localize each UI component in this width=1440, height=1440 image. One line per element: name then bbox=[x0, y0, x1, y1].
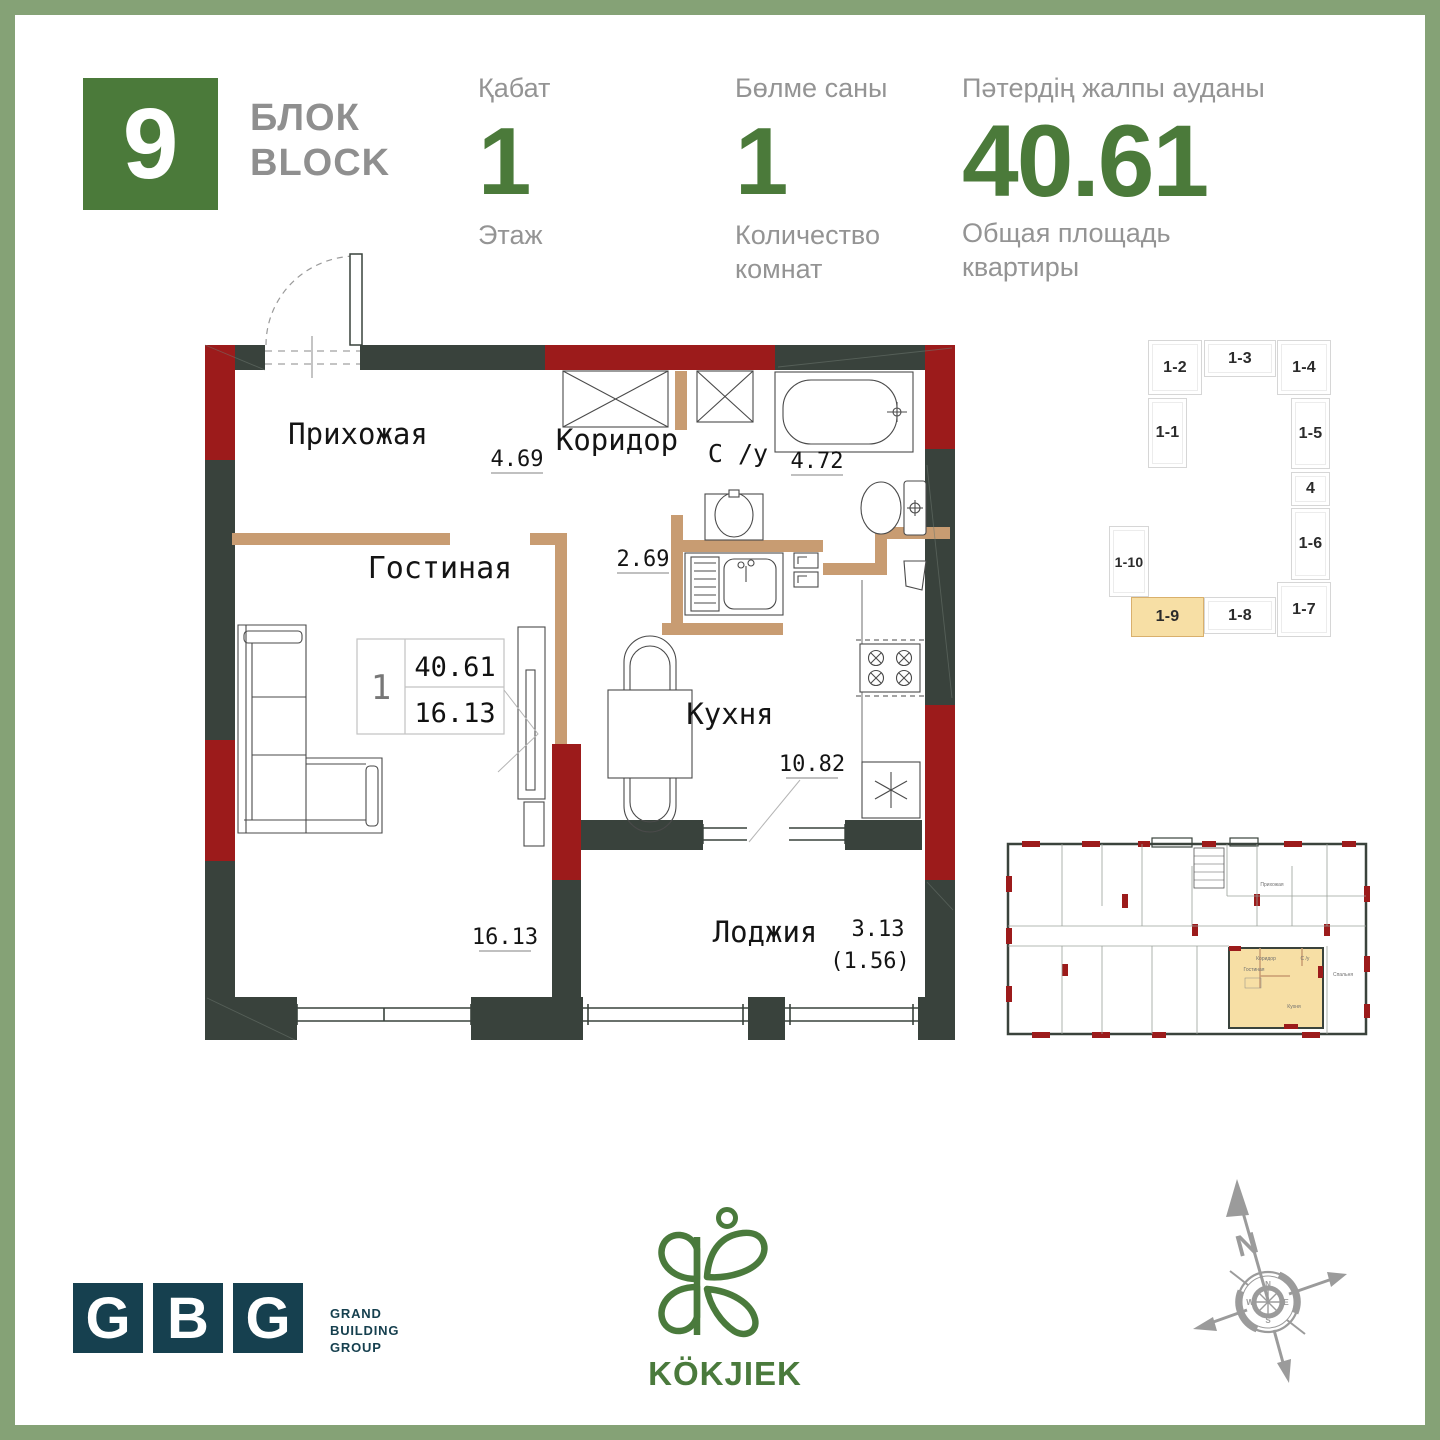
kokjiek-wordmark: KÖKJIEK bbox=[620, 1355, 830, 1393]
water-heater-icon bbox=[862, 762, 920, 818]
floor-label-kz: Қабат bbox=[478, 72, 698, 104]
corridor-label: Коридор bbox=[556, 423, 678, 457]
living-label: Гостиная bbox=[368, 551, 513, 586]
unit-label: 1-8 bbox=[1228, 607, 1252, 625]
loggia-area: 3.13 bbox=[852, 917, 905, 942]
mini-label-bedroom: Спальня bbox=[1333, 972, 1353, 978]
unit-label: 4 bbox=[1306, 480, 1315, 498]
unit-map-cell-1-6[interactable]: 1-6 bbox=[1291, 508, 1330, 580]
info-rooms-count: 1 bbox=[371, 668, 391, 708]
gbg-wordmark: GRAND BUILDING GROUP bbox=[330, 1305, 399, 1356]
mini-label-kitchen: Кухня bbox=[1287, 1004, 1301, 1010]
gbg-logo: G B G bbox=[73, 1283, 303, 1353]
living-area: 16.13 bbox=[472, 925, 538, 950]
loggia-label: Лоджия bbox=[713, 915, 818, 949]
door-opening-dashes bbox=[265, 336, 360, 378]
mini-label-entry: Прихожая bbox=[1260, 882, 1283, 888]
electrical-panel-icon bbox=[794, 553, 818, 587]
apartment-floor-plan: 1 40.61 16.13 Прихожая Коридор С /у 4.69… bbox=[200, 250, 960, 1040]
compass-ring-n: N bbox=[1265, 1280, 1271, 1289]
compass-ring-w: W bbox=[1246, 1298, 1254, 1307]
door-leaf bbox=[350, 254, 362, 345]
unit-label: 1-2 bbox=[1163, 359, 1187, 377]
corridor-area: 4.69 bbox=[491, 447, 544, 472]
unit-map-cell-1-3[interactable]: 1-3 bbox=[1204, 340, 1276, 377]
unit-label: 1-3 bbox=[1228, 350, 1252, 368]
gbg-word-grand: GRAND bbox=[330, 1305, 399, 1322]
unit-map-cell-1-9-highlighted[interactable]: 1-9 bbox=[1131, 597, 1204, 637]
stat-area: Пәтердің жалпы ауданы 40.61 Общая площад… bbox=[962, 72, 1382, 284]
unit-label: 1-10 bbox=[1115, 554, 1144, 570]
toilet-icon bbox=[861, 481, 926, 535]
gbg-word-group: GROUP bbox=[330, 1339, 399, 1356]
kitchen-area: 10.82 bbox=[779, 752, 845, 777]
unit-map-cell-1-2[interactable]: 1-2 bbox=[1148, 340, 1202, 395]
unit-map-cell-1-7[interactable]: 1-7 bbox=[1277, 582, 1331, 637]
info-living-area: 16.13 bbox=[414, 698, 495, 729]
block-number-badge: 9 bbox=[83, 78, 218, 210]
tv-unit-icon bbox=[518, 627, 545, 846]
unit-label: 1-9 bbox=[1156, 608, 1180, 626]
gbg-word-building: BUILDING bbox=[330, 1322, 399, 1339]
gbg-square-1: G bbox=[73, 1283, 143, 1353]
rooms-value: 1 bbox=[735, 110, 955, 214]
compass-icon: N N E S W bbox=[1175, 1165, 1375, 1405]
floor-overview-mini-plan: Гостиная Кухня Коридор С /у Прихожая Спа… bbox=[1002, 836, 1374, 1046]
floor-label-ru: Этаж bbox=[478, 218, 698, 252]
gbg-letter: B bbox=[167, 1285, 209, 1352]
plan-info-box: 1 40.61 16.13 bbox=[357, 639, 538, 772]
unit-map-cell-4[interactable]: 4 bbox=[1291, 472, 1330, 506]
bath-item-icon bbox=[904, 561, 926, 590]
flyer-page: 9 БЛОК BLOCK Қабат 1 Этаж Бөлме саны 1 К… bbox=[0, 0, 1440, 1440]
entry-label: Прихожая bbox=[288, 417, 428, 451]
block-number: 9 bbox=[123, 87, 179, 202]
unit-map-cell-1-10[interactable]: 1-10 bbox=[1109, 526, 1149, 597]
bathroom-area: 4.72 bbox=[791, 449, 844, 474]
stat-floor: Қабат 1 Этаж bbox=[478, 72, 698, 252]
bathroom-label: С /у bbox=[708, 439, 768, 468]
floor-value: 1 bbox=[478, 110, 698, 214]
unit-label: 1-1 bbox=[1156, 424, 1180, 442]
mini-label-bath: С /у bbox=[1301, 956, 1310, 962]
gbg-square-3: G bbox=[233, 1283, 303, 1353]
loggia-area-coef: (1.56) bbox=[830, 949, 909, 974]
gbg-letter: G bbox=[85, 1285, 130, 1352]
gbg-letter: G bbox=[245, 1285, 290, 1352]
door-swing-arc bbox=[266, 256, 357, 345]
unit-map-cell-1-4[interactable]: 1-4 bbox=[1277, 340, 1331, 395]
unit-map-cell-1-5[interactable]: 1-5 bbox=[1291, 398, 1330, 469]
area-label-kz: Пәтердің жалпы ауданы bbox=[962, 72, 1382, 104]
kitchen-dim: 2.69 bbox=[617, 547, 670, 572]
wardrobe-icon bbox=[563, 371, 668, 427]
area-label-ru: Общая площадь квартиры bbox=[962, 216, 1222, 284]
washing-machine-icon bbox=[697, 371, 753, 422]
mini-plan-stairs bbox=[1194, 848, 1224, 888]
unit-label: 1-7 bbox=[1292, 601, 1316, 619]
kitchen-label: Кухня bbox=[686, 697, 773, 731]
area-value: 40.61 bbox=[962, 108, 1382, 214]
unit-label: 1-4 bbox=[1292, 359, 1316, 377]
mini-label-living: Гостиная bbox=[1244, 967, 1265, 973]
block-label-en: BLOCK bbox=[250, 141, 390, 186]
unit-label: 1-6 bbox=[1299, 535, 1323, 553]
unit-label: 1-5 bbox=[1299, 425, 1323, 443]
unit-map-cell-1-8[interactable]: 1-8 bbox=[1204, 597, 1276, 634]
kokjiek-logo-icon bbox=[655, 1205, 785, 1355]
kitchen-sink-icon bbox=[685, 553, 783, 615]
info-total-area: 40.61 bbox=[414, 652, 495, 683]
block-label-ru: БЛОК bbox=[250, 96, 390, 141]
dining-table-icon bbox=[608, 636, 692, 832]
kitchen-leader-line bbox=[749, 780, 800, 842]
bathtub-icon bbox=[775, 372, 913, 452]
compass-north-letter: N bbox=[1232, 1226, 1261, 1263]
gbg-square-2: B bbox=[153, 1283, 223, 1353]
unit-map-cell-1-1[interactable]: 1-1 bbox=[1148, 398, 1187, 468]
windows-loggia bbox=[703, 824, 845, 844]
rooms-label-kz: Бөлме саны bbox=[735, 72, 955, 104]
windows-bottom bbox=[297, 1004, 918, 1025]
mini-label-corridor: Коридор bbox=[1256, 956, 1276, 962]
washbasin-icon bbox=[705, 490, 763, 540]
block-label: БЛОК BLOCK bbox=[250, 96, 390, 186]
compass-ring-s: S bbox=[1265, 1316, 1271, 1325]
compass-ring-e: E bbox=[1283, 1298, 1289, 1307]
